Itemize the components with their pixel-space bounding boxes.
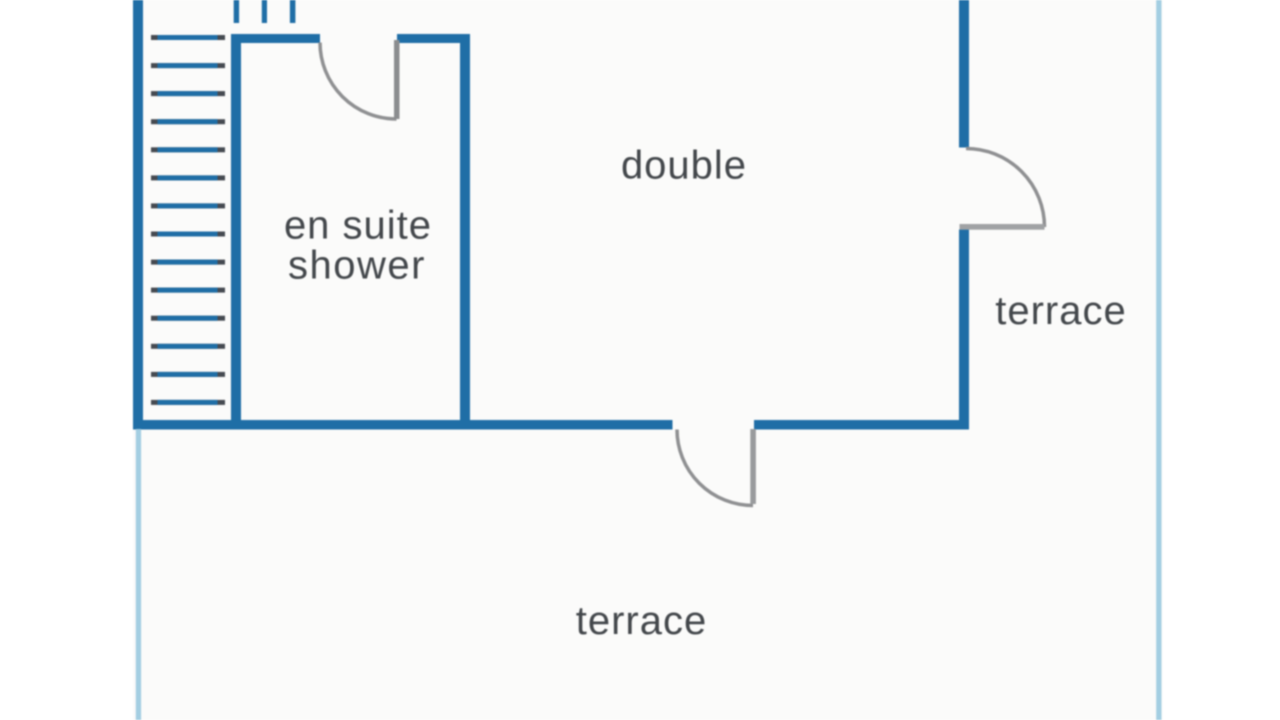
svg-text:en suite: en suite [284, 203, 432, 247]
svg-text:double: double [621, 144, 747, 188]
svg-text:terrace: terrace [995, 289, 1127, 333]
svg-text:terrace: terrace [576, 599, 708, 643]
svg-text:shower: shower [288, 243, 426, 287]
